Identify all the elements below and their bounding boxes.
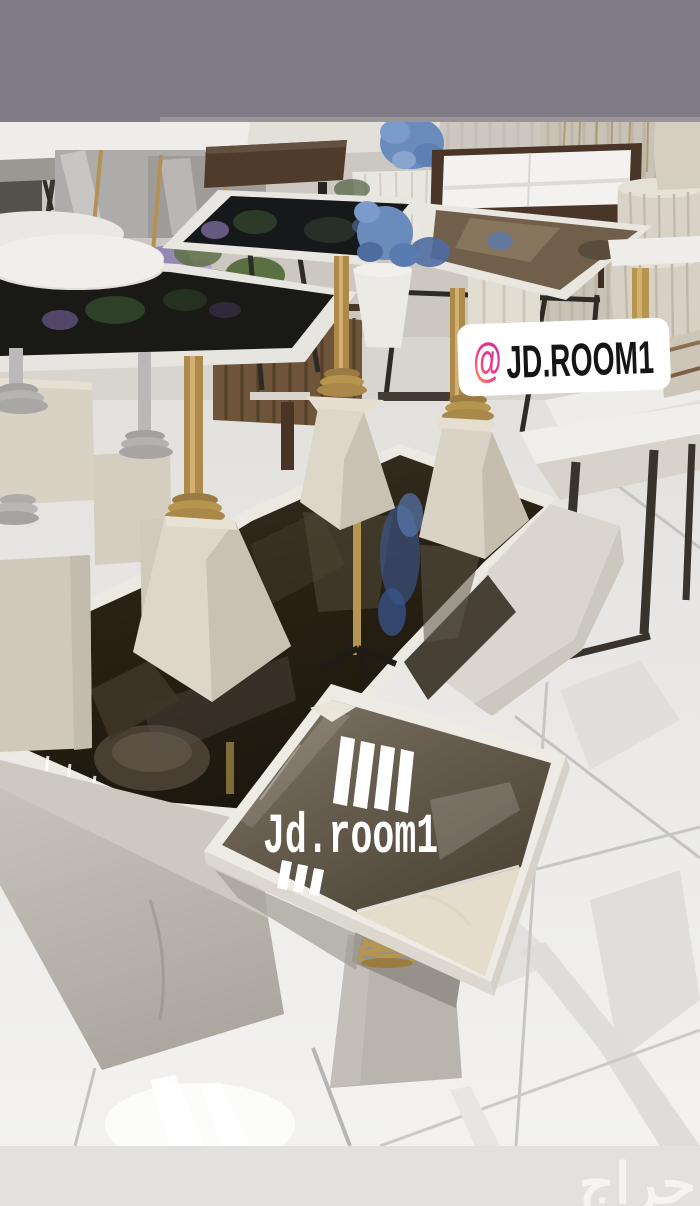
svg-text:JD.ROOM1: JD.ROOM1 [505, 332, 654, 389]
svg-text:حراج: حراج [579, 1152, 696, 1206]
svg-text:@: @ [472, 334, 502, 387]
svg-text:Jd.room1: Jd.room1 [263, 806, 438, 870]
